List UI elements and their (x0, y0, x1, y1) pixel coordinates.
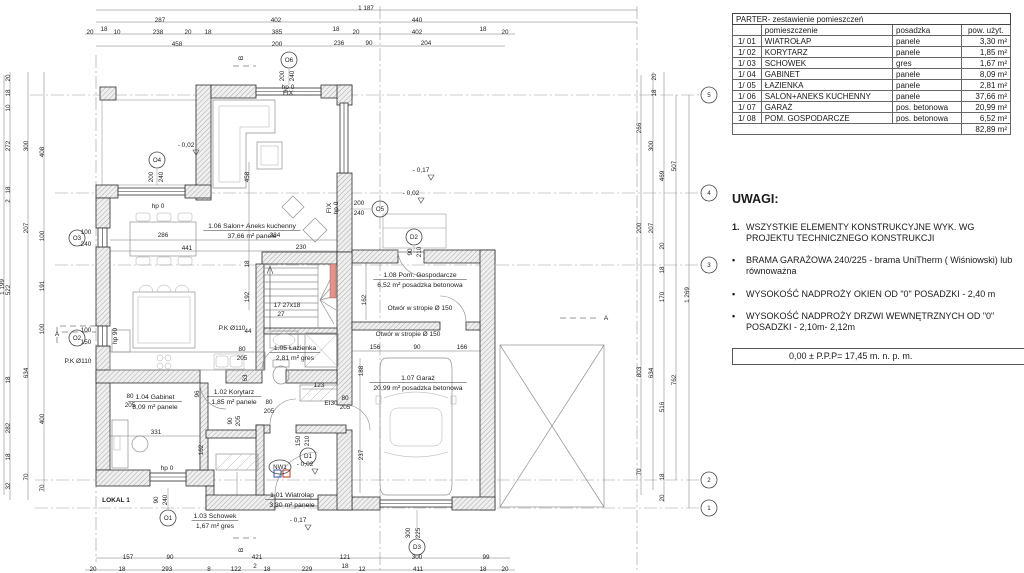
tag-label: 3 (707, 262, 711, 269)
table-cell: 1/ 02 (733, 47, 762, 58)
dimension-label: 634 (648, 367, 655, 378)
dimension-label: 458 (172, 41, 183, 48)
dimension-label: 123 (314, 382, 325, 389)
dimension-label: 80 (126, 393, 134, 400)
table-row: 1/ 05ŁAZIENKApanele2,81 m² (733, 80, 1011, 91)
dimension-label: 522 (5, 284, 12, 295)
annotation-label: P.K Ø110 (219, 325, 246, 332)
annotation-label: hp 0 (152, 203, 165, 210)
annotation-label: hp 90 (112, 327, 119, 344)
table-row: 1/ 08POM. GOSPODARCZEpos. betonowa6,52 m… (733, 113, 1011, 124)
dimension-label: 20 (651, 73, 658, 81)
dimension-label: 8 (207, 566, 211, 573)
dimension-label: 18 (659, 473, 666, 481)
dimension-label: 1 269 (684, 287, 691, 303)
desk-chair (132, 436, 148, 452)
table-row: 1/ 02KORYTARZpanele1,85 m² (733, 47, 1011, 58)
dimension-label: 385 (272, 29, 283, 36)
dimension-label: 421 (252, 554, 263, 561)
annotation-label: FIX (326, 202, 333, 213)
table-cell: pow. użyt. (961, 25, 1010, 36)
driveway-crossed-area (500, 345, 604, 507)
dimension-label: 18 (100, 26, 108, 33)
dimension-label: 121 (340, 554, 351, 561)
table-cell: 37,66 m² (961, 91, 1010, 102)
table-cell: 1/ 01 (733, 36, 762, 47)
dimension-label: 240 (289, 70, 296, 81)
table-cell: pomieszczenie (761, 25, 892, 36)
floor-plan-drawing: 1 18728740244020181023820183851820402182… (0, 0, 726, 573)
dimension-label: 70 (636, 468, 643, 476)
dimension-label: 20 (659, 242, 666, 250)
dimension-label: 20 (352, 29, 360, 36)
dimension-label: 20 (501, 29, 509, 36)
dimension-label: 191 (39, 280, 46, 291)
room-area: 37,66 m² panele (227, 233, 276, 240)
armchair (303, 218, 327, 242)
dimension-label: 192 (244, 291, 251, 302)
dimension-label: 210 (304, 435, 311, 446)
dimension-label: 10 (5, 104, 12, 112)
dimension-label: 240 (354, 210, 365, 217)
dimension-label: 1 187 (358, 5, 374, 12)
dimension-label: 762 (671, 374, 678, 385)
dimension-label: 440 (412, 17, 423, 24)
table-cell: 1/ 03 (733, 58, 762, 69)
dimension-label: 293 (162, 566, 173, 573)
dimension-label: 150 (295, 435, 302, 446)
tag-label: D3 (413, 544, 421, 551)
tag-label: 1 (707, 505, 711, 512)
dimension-label: 204 (421, 40, 432, 47)
room-name: 1.04 Gabinet (136, 394, 175, 401)
dimension-label: 441 (182, 245, 193, 252)
dimension-label: 100 (39, 323, 46, 334)
dimension-label: 162 (198, 444, 205, 455)
dimension-label: 18 (479, 566, 487, 573)
table-cell: pos. betonowa (893, 102, 962, 113)
dimension-label: 90 (413, 344, 421, 351)
table-cell: 8,09 m² (961, 69, 1010, 80)
table-row: 1/ 01WIATROŁAPpanele3,30 m² (733, 36, 1011, 47)
dimension-label: 90 (365, 40, 373, 47)
room-area: 6,52 m² posadzka betonowa (377, 282, 463, 289)
room-name: 1.02 Korytarz (214, 389, 255, 396)
annotation-label: hp 0 (161, 465, 174, 472)
kitchen-island (133, 292, 195, 348)
annotation-label: A (55, 331, 60, 338)
annotation-label: - 0,02 (297, 461, 314, 468)
dimension-label: 272 (5, 140, 12, 151)
dimension-label: 229 (302, 566, 313, 573)
table-cell: KORYTARZ (761, 47, 892, 58)
annotation-label: B (238, 548, 245, 552)
note-text: WYSOKOŚĆ NADPROŻY DRZWI WEWNĘTRZNYCH OD … (746, 311, 1020, 334)
bullet-marker: • (732, 289, 746, 300)
dimension-label: 634 (23, 367, 30, 378)
note-text: WYSOKOŚĆ NADPROŻY OKIEN OD "0" POSADZKI … (746, 289, 995, 300)
room-area: 3,30 m² panele (269, 502, 315, 509)
dimension-label: 18 (118, 566, 126, 573)
dimension-label: 90 (153, 496, 160, 504)
annotation-label: - 0,17 (290, 517, 307, 524)
annotation-label: EI30 (324, 400, 338, 407)
right-panel: PARTER- zestawienie pomieszczeńpomieszcz… (732, 0, 1024, 573)
dimension-label: 238 (153, 29, 164, 36)
dimension-label: 286 (158, 232, 169, 239)
dimension-label: 20 (86, 29, 94, 36)
dimension-label: 63 (242, 374, 249, 382)
dimension-label: 70 (23, 473, 30, 481)
table-cell: SALON+ANEKS KUCHENNY (761, 91, 892, 102)
level-reference-box: 0,00 ± P.P.P= 17,45 m. n. p. m. (732, 348, 1024, 365)
dimension-label: 166 (457, 344, 468, 351)
annotation-label: hp 0 (333, 201, 340, 214)
annotation-label: B (238, 56, 245, 60)
table-cell: gres (893, 58, 962, 69)
dimension-label: 90 (166, 554, 174, 561)
dimension-label: 207 (23, 222, 30, 233)
dimension-label: 300 (648, 140, 655, 151)
dimension-label: 122 (231, 566, 242, 573)
dimension-label: 20 (659, 494, 666, 502)
dimension-label: 80 (238, 346, 246, 353)
dimension-label: 100 (39, 230, 46, 241)
dimension-label: 18 (263, 566, 271, 573)
bullet-marker: • (732, 255, 746, 278)
table-cell: SCHOWEK (761, 58, 892, 69)
dimension-label: 210 (416, 246, 423, 257)
dimension-label: 18 (659, 266, 666, 274)
stair-beam-marker (330, 264, 336, 298)
dimension-label: 458 (244, 171, 251, 182)
dimension-label: 80 (341, 395, 349, 402)
note-text: BRAMA GARAŻOWA 240/225 - brama UniTherm … (746, 255, 1020, 278)
room-name: 1.01 Wiatrołap (270, 492, 314, 499)
room-name: 1.08 Pom. Gospodarcze (383, 272, 457, 279)
dimension-label: 205 (264, 408, 275, 415)
dimension-label: 400 (39, 413, 46, 424)
tag-label: O2 (73, 335, 82, 342)
dimension-label: 170 (659, 291, 666, 302)
table-cell: 6,52 m² (961, 113, 1010, 124)
room-area: 2,81 m² gres (276, 355, 315, 362)
dimension-label: 18 (244, 260, 251, 268)
room-name: 1.06 Salon+ Aneks kuchenny (208, 223, 296, 230)
dimension-label: 18 (332, 26, 340, 33)
dimension-label: 18 (5, 186, 12, 194)
note-bullet: •BRAMA GARAŻOWA 240/225 - brama UniTherm… (732, 255, 1020, 278)
dimension-label: 18 (5, 453, 12, 461)
table-cell: panele (893, 47, 962, 58)
table-cell: 1/ 07 (733, 102, 762, 113)
dimension-label: 266 (636, 122, 643, 133)
armchair (282, 196, 304, 218)
table-row: 1/ 07GARAŻpos. betonowa20,99 m² (733, 102, 1011, 113)
bullet-marker: • (732, 311, 746, 334)
dimension-label: 200 (272, 41, 283, 48)
dimension-label: 18 (651, 89, 658, 97)
dimension-label: 282 (5, 422, 12, 433)
dimension-label: 516 (659, 401, 666, 412)
dimension-label: 12 (358, 566, 366, 573)
dimension-label: 18 (5, 376, 12, 384)
annotation-label: - 0,02 (178, 142, 195, 149)
annotation-label: LOKAL 1 (102, 497, 130, 504)
dimension-label: 402 (412, 29, 423, 36)
notes-block: UWAGI: 1. WSZYSTKIE ELEMENTY KONSTRUKCYJ… (732, 192, 1020, 365)
dimension-label: 20 (501, 566, 509, 573)
dimension-label: 18 (204, 29, 212, 36)
dimension-label: 205 (237, 355, 248, 362)
table-cell: 1/ 08 (733, 113, 762, 124)
room-area: 1,67 m² gres (196, 523, 235, 530)
annotation-label: - 0,02 (403, 190, 420, 197)
tag-label: O6 (285, 57, 294, 64)
dimension-label: 18 (479, 26, 487, 33)
dimension-label: 300 (23, 140, 30, 151)
annotation-label: - 0,17 (413, 167, 430, 174)
dimension-label: 2 (253, 563, 257, 570)
table-cell: 1/ 05 (733, 80, 762, 91)
dimension-label: 99 (482, 554, 490, 561)
dimension-label: 18 (5, 89, 12, 97)
dimension-label: 237 (358, 449, 365, 460)
annotation-label: 27 (277, 311, 285, 318)
dimension-label: 32 (5, 482, 12, 490)
table-cell: 20,99 m² (961, 102, 1010, 113)
annotation-label: 17 27x18 (274, 302, 301, 309)
dimension-label: 225 (415, 527, 422, 538)
tag-label: 2 (707, 477, 711, 484)
table-cell: GABINET (761, 69, 892, 80)
table-cell: posadzka (893, 25, 962, 36)
table-cell: panele (893, 69, 962, 80)
dimension-label: 469 (659, 170, 666, 181)
table-cell: 3,30 m² (961, 36, 1010, 47)
drawing-sheet: 1 18728740244020181023820183851820402182… (0, 0, 1024, 573)
tag-label: NW1 (273, 464, 287, 471)
dimension-label: 205 (340, 404, 351, 411)
dimension-label: 240 (81, 241, 92, 248)
tag-label: O3 (73, 235, 82, 242)
tag-label: D1 (304, 453, 312, 460)
dimension-label: 236 (334, 40, 345, 47)
annotation-label: P.K Ø110 (65, 358, 92, 365)
table-cell: 1,67 m² (961, 58, 1010, 69)
notes-heading: UWAGI: (732, 192, 1020, 208)
table-cell: panele (893, 91, 962, 102)
table-cell: ŁAZIENKA (761, 80, 892, 91)
dimension-label: 20 (184, 29, 192, 36)
tag-label: 4 (707, 190, 711, 197)
dimension-label: 90 (407, 248, 414, 256)
dimension-label: 70 (39, 484, 46, 492)
dimension-label: 200 (279, 70, 286, 81)
room-name: 1.03 Schowek (194, 513, 237, 520)
table-cell: pos. betonowa (893, 113, 962, 124)
dimension-label: 507 (671, 160, 678, 171)
table-cell: WIATROŁAP (761, 36, 892, 47)
tag-label: D2 (410, 234, 418, 241)
table-cell: 82,89 m² (961, 124, 1010, 135)
tag-label: 5 (707, 92, 711, 99)
room-area: 8,09 m² panele (132, 404, 178, 411)
room-area: 20,99 m² posadzka betonowa (373, 385, 462, 392)
dimension-label: 100 (81, 327, 92, 334)
table-cell: 1/ 06 (733, 91, 762, 102)
tag-label: O1 (164, 515, 173, 522)
dimension-label: 162 (361, 294, 368, 305)
table-cell (733, 25, 762, 36)
dimension-label: 80 (265, 399, 273, 406)
dimension-label: 205 (235, 415, 242, 426)
dimension-label: 803 (636, 366, 643, 377)
dimension-label: 200 (636, 222, 643, 233)
table-cell: 1,85 m² (961, 47, 1010, 58)
annotation-label: A (604, 315, 609, 322)
dimension-label: 300 (405, 527, 412, 538)
table-cell: panele (893, 36, 962, 47)
dimension-label: 156 (370, 344, 381, 351)
table-row: 1/ 03SCHOWEKgres1,67 m² (733, 58, 1011, 69)
windows (98, 88, 452, 507)
annotation-label: Otwór w stropie Ø 150 (388, 305, 453, 312)
stairs (264, 264, 336, 330)
exterior-areas (102, 100, 604, 507)
dimension-label: 18 (341, 563, 349, 570)
dimension-label: 44 (244, 328, 252, 335)
dimension-label: 20 (5, 74, 12, 82)
dimension-label: 411 (413, 566, 424, 573)
table-cell: 2,81 m² (961, 80, 1010, 91)
dimension-label: 20 (89, 566, 97, 573)
table-cell (733, 124, 962, 135)
dimension-label: 90 (227, 417, 234, 425)
table-cell: GARAŻ (761, 102, 892, 113)
annotation-label: Otwór w stropie Ø 150 (376, 331, 441, 338)
table-cell: 1/ 04 (733, 69, 762, 80)
dimension-label: 240 (162, 494, 169, 505)
dimension-label: 150 (81, 339, 92, 346)
dimension-label: 240 (158, 171, 165, 182)
porch-outline (383, 214, 446, 248)
dimension-label: 331 (151, 429, 162, 436)
note-bullet: •WYSOKOŚĆ NADPROŻY DRZWI WEWNĘTRZNYCH OD… (732, 311, 1020, 334)
room-schedule-table: PARTER- zestawienie pomieszczeńpomieszcz… (732, 13, 1011, 135)
note-number: 1. (732, 222, 746, 245)
dimension-label: 157 (123, 554, 134, 561)
dimension-label: 96 (194, 390, 201, 398)
dimension-label: 230 (296, 244, 307, 251)
annotation-label: FIX (283, 90, 294, 97)
dimension-label: 200 (148, 171, 155, 182)
note-item-1: 1. WSZYSTKIE ELEMENTY KONSTRUKCYJNE WYK.… (732, 222, 1020, 245)
tag-label: O4 (153, 157, 162, 164)
table-cell: POM. GOSPODARCZE (761, 113, 892, 124)
room-name: 1.07 Garaż (401, 375, 435, 382)
table-cell: panele (893, 80, 962, 91)
room-area: 1,85 m² panele (211, 399, 257, 406)
dimension-label: 200 (354, 200, 365, 207)
table-row: 1/ 06SALON+ANEKS KUCHENNYpanele37,66 m² (733, 91, 1011, 102)
dimension-label: 408 (39, 146, 46, 157)
table-title: PARTER- zestawienie pomieszczeń (733, 14, 1011, 25)
note-text: WSZYSTKIE ELEMENTY KONSTRUKCYJNE WYK. WG… (746, 222, 1020, 245)
dimension-label: 188 (358, 365, 365, 376)
room-name: 1.05 Łazienka (274, 345, 317, 352)
dimension-label: 207 (648, 222, 655, 233)
tag-label: O5 (376, 206, 385, 213)
table-row: 1/ 04GABINETpanele8,09 m² (733, 69, 1011, 80)
note-bullet: •WYSOKOŚĆ NADPROŻY OKIEN OD "0" POSADZKI… (732, 289, 1020, 300)
dimension-label: 2 (5, 199, 12, 203)
dimension-label: 402 (271, 17, 282, 24)
dimension-label: 10 (113, 29, 121, 36)
dimension-label: 287 (155, 17, 166, 24)
